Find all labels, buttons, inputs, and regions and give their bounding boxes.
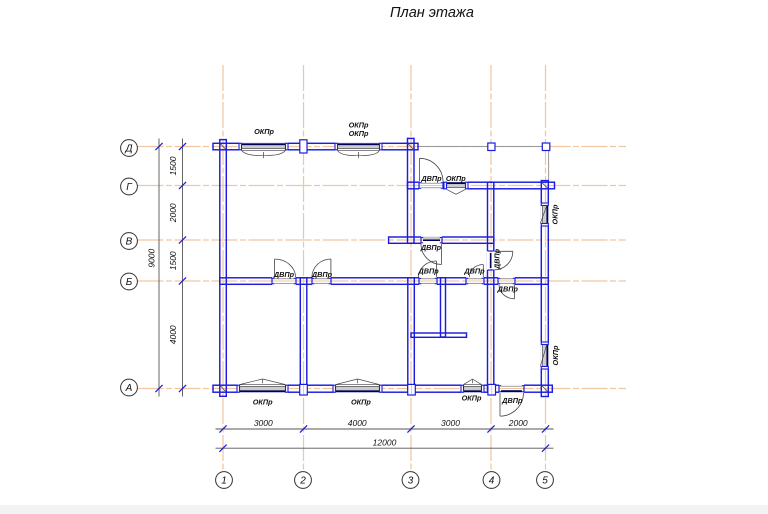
svg-text:9000: 9000: [147, 248, 157, 267]
svg-text:2: 2: [299, 476, 306, 487]
svg-text:ОКПр: ОКПр: [349, 129, 369, 138]
svg-text:Д: Д: [124, 144, 132, 155]
svg-text:ОКПр: ОКПр: [253, 398, 273, 407]
svg-text:А: А: [125, 383, 133, 394]
svg-text:ОКПр: ОКПр: [551, 204, 560, 224]
svg-text:ДВПр: ДВПр: [420, 174, 442, 183]
svg-text:1500: 1500: [168, 156, 178, 175]
svg-text:12000: 12000: [373, 438, 397, 448]
svg-text:План этажа: План этажа: [390, 5, 474, 21]
svg-text:1500: 1500: [168, 251, 178, 270]
svg-text:2000: 2000: [168, 203, 178, 223]
svg-text:ОКПр: ОКПр: [351, 398, 371, 407]
svg-text:5: 5: [542, 476, 548, 487]
svg-text:ОКПр: ОКПр: [446, 174, 466, 183]
svg-text:ДВПр: ДВПр: [311, 270, 333, 279]
svg-text:ОКПр: ОКПр: [349, 120, 369, 129]
svg-text:ДВПр: ДВПр: [497, 284, 519, 293]
svg-text:ДВПр: ДВПр: [420, 243, 442, 252]
svg-text:3000: 3000: [254, 418, 273, 428]
svg-text:ДВПр: ДВПр: [501, 396, 523, 405]
svg-text:1: 1: [221, 476, 227, 487]
svg-text:3: 3: [408, 476, 414, 487]
svg-text:ОКПр: ОКПр: [551, 345, 560, 365]
svg-text:ДВПр: ДВПр: [463, 267, 485, 276]
svg-text:4000: 4000: [168, 325, 178, 344]
svg-text:Б: Б: [126, 277, 133, 288]
svg-text:2000: 2000: [508, 418, 528, 428]
svg-text:ОКПр: ОКПр: [462, 394, 482, 403]
svg-text:В: В: [126, 237, 133, 248]
svg-text:4: 4: [489, 476, 495, 487]
svg-text:ДВПр: ДВПр: [493, 248, 502, 270]
svg-text:4000: 4000: [348, 418, 367, 428]
svg-text:ДВПр: ДВПр: [417, 267, 439, 276]
svg-text:ДВПр: ДВПр: [273, 270, 295, 279]
svg-text:3000: 3000: [441, 418, 460, 428]
svg-text:ОКПр: ОКПр: [254, 127, 274, 136]
